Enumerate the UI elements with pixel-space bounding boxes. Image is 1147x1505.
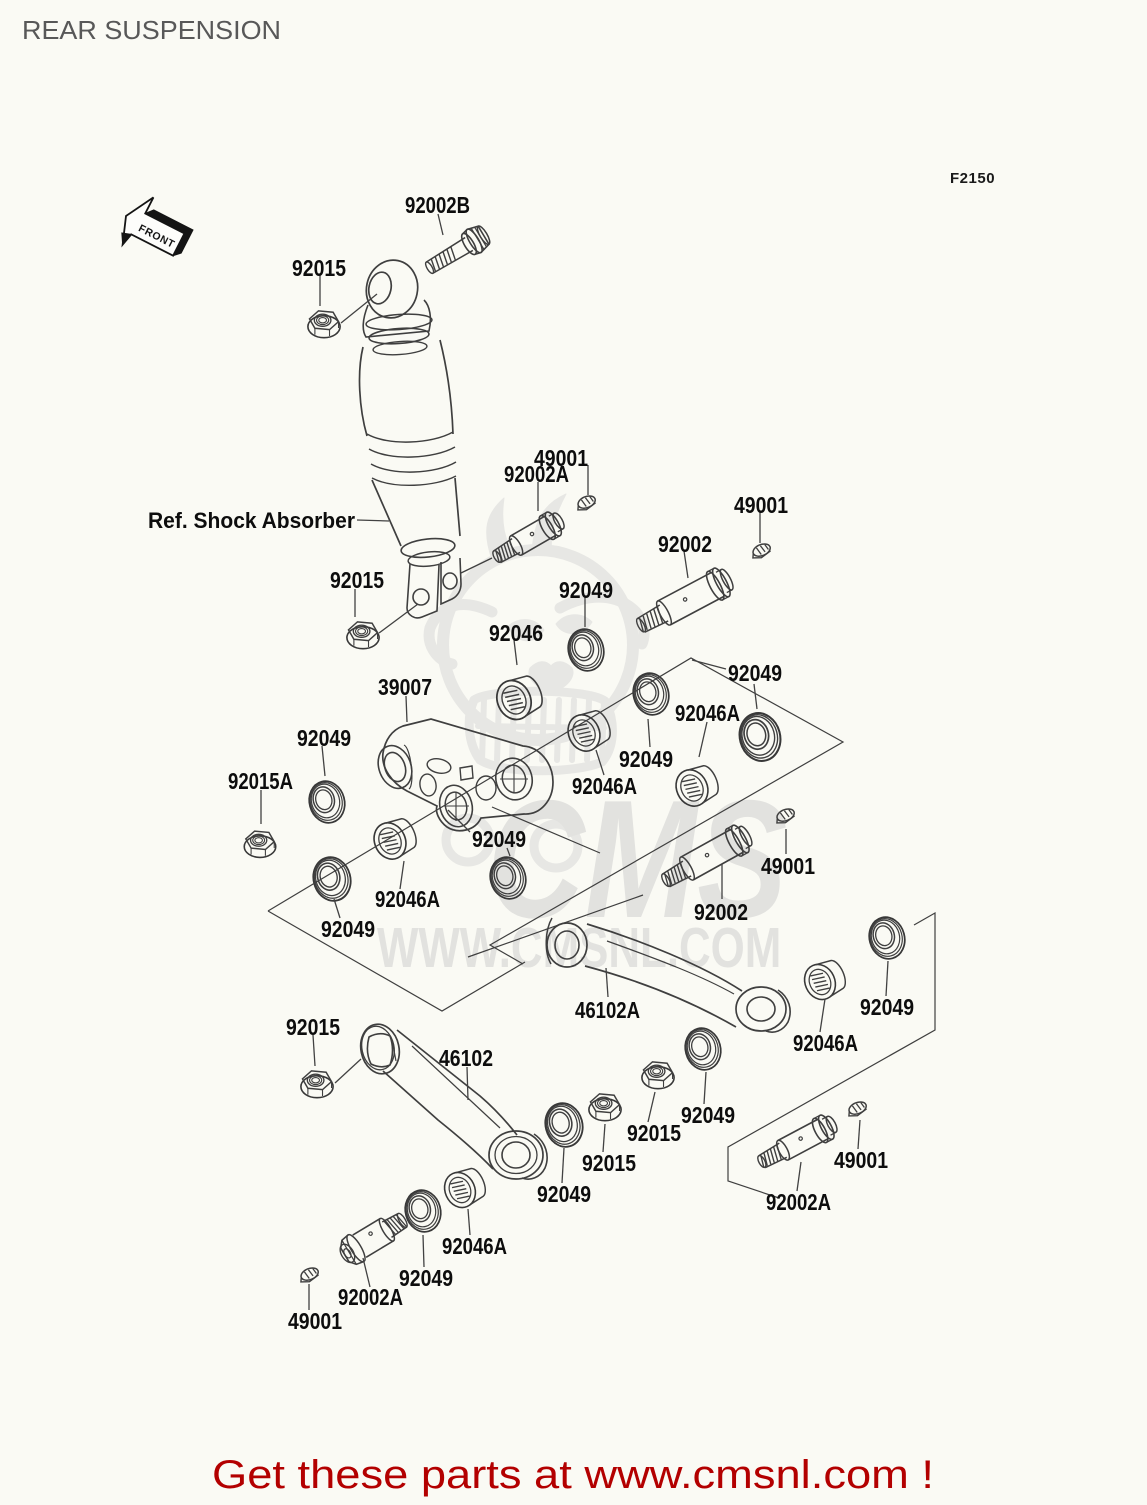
svg-text:92049: 92049 (728, 660, 782, 686)
svg-text:92046A: 92046A (793, 1030, 858, 1056)
svg-text:49001: 49001 (761, 853, 815, 879)
svg-text:92002A: 92002A (338, 1284, 403, 1310)
svg-text:49001: 49001 (288, 1308, 342, 1334)
svg-text:46102: 46102 (439, 1045, 493, 1071)
svg-text:92046A: 92046A (675, 700, 740, 726)
svg-text:92049: 92049 (472, 826, 526, 852)
svg-text:REAR SUSPENSION: REAR SUSPENSION (22, 15, 281, 45)
svg-text:92049: 92049 (681, 1102, 735, 1128)
svg-text:92049: 92049 (321, 916, 375, 942)
svg-text:49001: 49001 (834, 1147, 888, 1173)
svg-text:39007: 39007 (378, 674, 432, 700)
svg-text:92015: 92015 (582, 1150, 636, 1176)
svg-text:92002: 92002 (658, 531, 712, 557)
svg-text:92002A: 92002A (766, 1189, 831, 1215)
svg-text:92002: 92002 (694, 899, 748, 925)
svg-text:92015: 92015 (627, 1120, 681, 1146)
svg-text:92015: 92015 (292, 255, 346, 281)
svg-text:92015A: 92015A (228, 768, 293, 794)
svg-text:92002B: 92002B (405, 192, 470, 218)
svg-text:Ref. Shock Absorber: Ref. Shock Absorber (148, 508, 355, 533)
svg-text:Get these parts at www.cmsnl.c: Get these parts at www.cmsnl.com ! (212, 1453, 934, 1497)
svg-text:92046A: 92046A (572, 773, 637, 799)
svg-text:92049: 92049 (297, 725, 351, 751)
svg-text:92049: 92049 (399, 1265, 453, 1291)
svg-text:92046: 92046 (489, 620, 543, 646)
svg-text:92049: 92049 (537, 1181, 591, 1207)
svg-text:92015: 92015 (286, 1014, 340, 1040)
svg-text:92049: 92049 (559, 577, 613, 603)
svg-text:92015: 92015 (330, 567, 384, 593)
svg-text:92049: 92049 (860, 994, 914, 1020)
svg-text:F2150: F2150 (950, 170, 995, 187)
svg-text:46102A: 46102A (575, 997, 640, 1023)
svg-text:92049: 92049 (619, 746, 673, 772)
svg-text:92046A: 92046A (442, 1233, 507, 1259)
svg-text:92002A: 92002A (504, 461, 569, 487)
svg-text:49001: 49001 (734, 492, 788, 518)
svg-text:92046A: 92046A (375, 886, 440, 912)
